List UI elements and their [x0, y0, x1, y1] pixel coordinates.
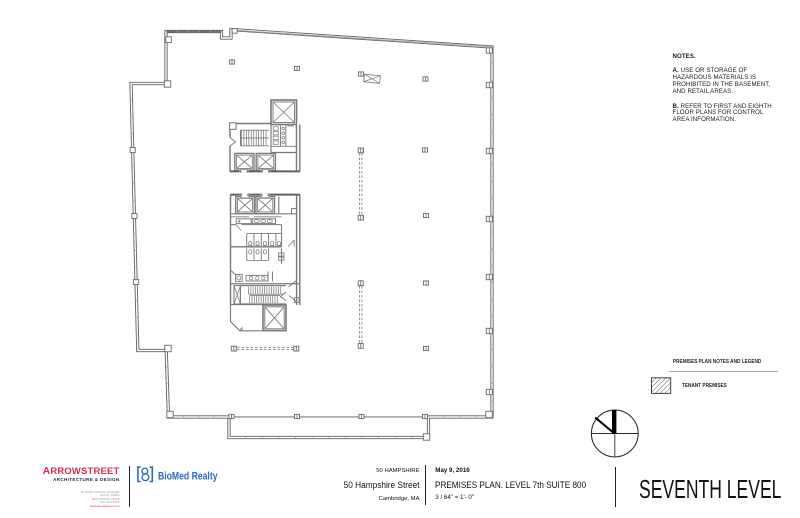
- svg-text:BioMed Realty: BioMed Realty: [158, 470, 218, 482]
